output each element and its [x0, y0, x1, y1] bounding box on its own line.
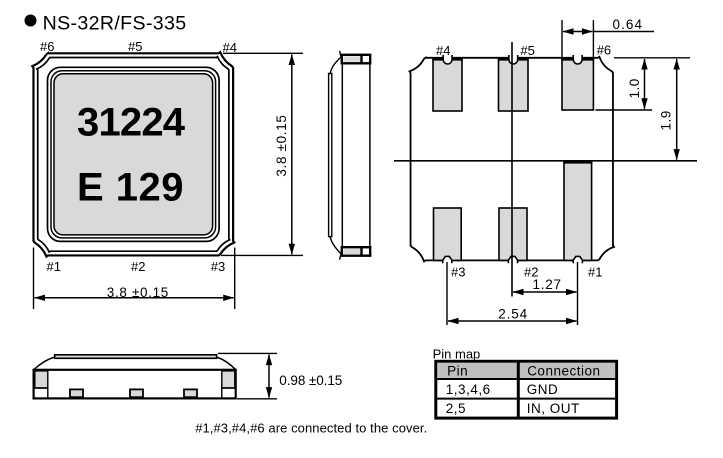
svg-text:E 129: E 129: [77, 166, 184, 210]
svg-text:3.8 ±0.15: 3.8 ±0.15: [274, 115, 289, 177]
svg-text:#6: #6: [40, 39, 54, 54]
svg-text:Connection: Connection: [527, 363, 600, 378]
svg-text:2,5: 2,5: [446, 401, 466, 416]
svg-text:31224: 31224: [77, 101, 186, 145]
svg-text:IN, OUT: IN, OUT: [527, 401, 580, 416]
svg-text:1.0: 1.0: [627, 79, 642, 99]
svg-text:1,3,4,6: 1,3,4,6: [446, 382, 491, 397]
svg-text:#2: #2: [131, 259, 145, 274]
svg-text:NS-32R/FS-335: NS-32R/FS-335: [43, 13, 187, 35]
svg-text:0.98 ±0.15: 0.98 ±0.15: [279, 373, 342, 388]
svg-text:Pin map: Pin map: [433, 346, 481, 361]
svg-text:#3: #3: [451, 265, 465, 280]
svg-text:2.54: 2.54: [498, 307, 527, 322]
svg-text:#3: #3: [211, 259, 225, 274]
svg-text:1.27: 1.27: [533, 277, 562, 292]
svg-text:#1,#3,#4,#6 are connected to t: #1,#3,#4,#6 are connected to the cover.: [195, 421, 427, 436]
svg-text:Pin: Pin: [447, 363, 468, 378]
svg-text:#1: #1: [588, 265, 602, 280]
svg-text:1.9: 1.9: [658, 111, 673, 131]
svg-text:#5: #5: [128, 39, 142, 54]
svg-text:3.8 ±0.15: 3.8 ±0.15: [107, 285, 169, 300]
svg-text:GND: GND: [527, 382, 559, 397]
svg-text:#4: #4: [436, 43, 450, 58]
svg-text:#5: #5: [520, 43, 534, 58]
svg-text:#6: #6: [597, 43, 611, 58]
svg-text:#1: #1: [47, 259, 61, 274]
svg-text:0.64: 0.64: [613, 17, 643, 32]
